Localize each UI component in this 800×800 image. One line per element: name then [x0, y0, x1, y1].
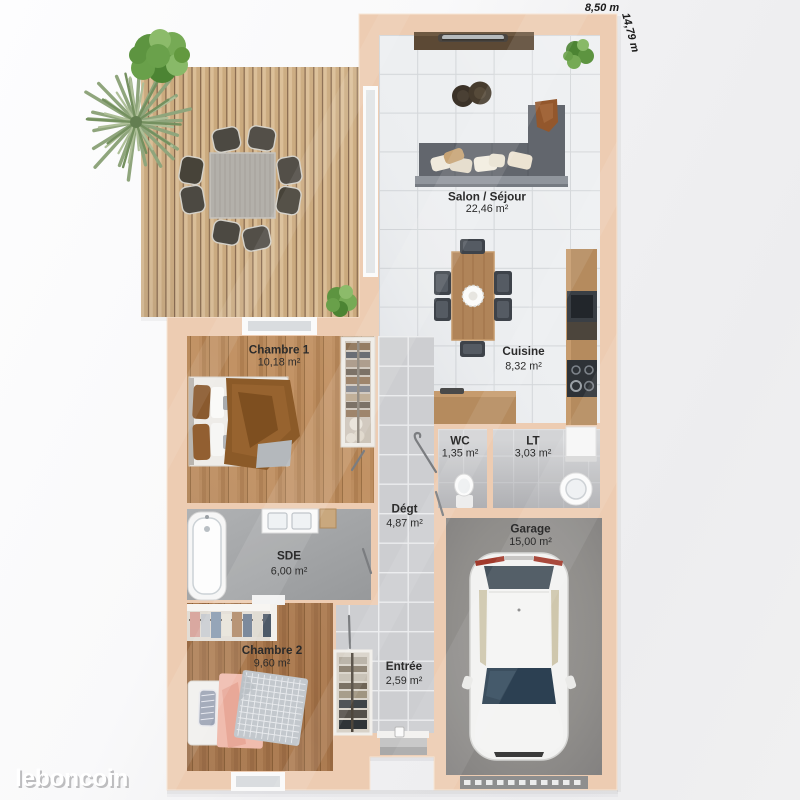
svg-text:22,46 m²: 22,46 m²	[466, 203, 509, 215]
svg-text:6,00 m²: 6,00 m²	[271, 566, 308, 578]
svg-text:4,87 m²: 4,87 m²	[386, 518, 423, 530]
svg-text:leboncoin: leboncoin	[15, 765, 128, 792]
svg-text:Cuisine: Cuisine	[502, 345, 545, 358]
svg-text:SDE: SDE	[277, 550, 301, 563]
svg-text:Salon / Séjour: Salon / Séjour	[448, 191, 526, 204]
svg-text:Chambre 2: Chambre 2	[242, 644, 303, 657]
svg-text:9,60 m²: 9,60 m²	[254, 658, 291, 670]
svg-text:14,79 m: 14,79 m	[619, 12, 641, 54]
svg-text:Chambre 1: Chambre 1	[249, 343, 310, 356]
svg-text:8,50 m: 8,50 m	[585, 2, 619, 14]
svg-text:Entrée: Entrée	[386, 660, 423, 673]
svg-text:1,35 m²: 1,35 m²	[442, 448, 479, 460]
svg-text:8,32 m²: 8,32 m²	[505, 361, 542, 373]
svg-text:15,00 m²: 15,00 m²	[509, 536, 552, 548]
svg-text:2,59 m²: 2,59 m²	[386, 675, 423, 687]
svg-text:WC: WC	[450, 435, 470, 448]
svg-text:Garage: Garage	[510, 523, 551, 536]
svg-text:LT: LT	[526, 435, 540, 448]
svg-text:10,18 m²: 10,18 m²	[258, 357, 301, 369]
svg-text:Dégt: Dégt	[392, 503, 418, 516]
svg-text:3,03 m²: 3,03 m²	[515, 448, 552, 460]
